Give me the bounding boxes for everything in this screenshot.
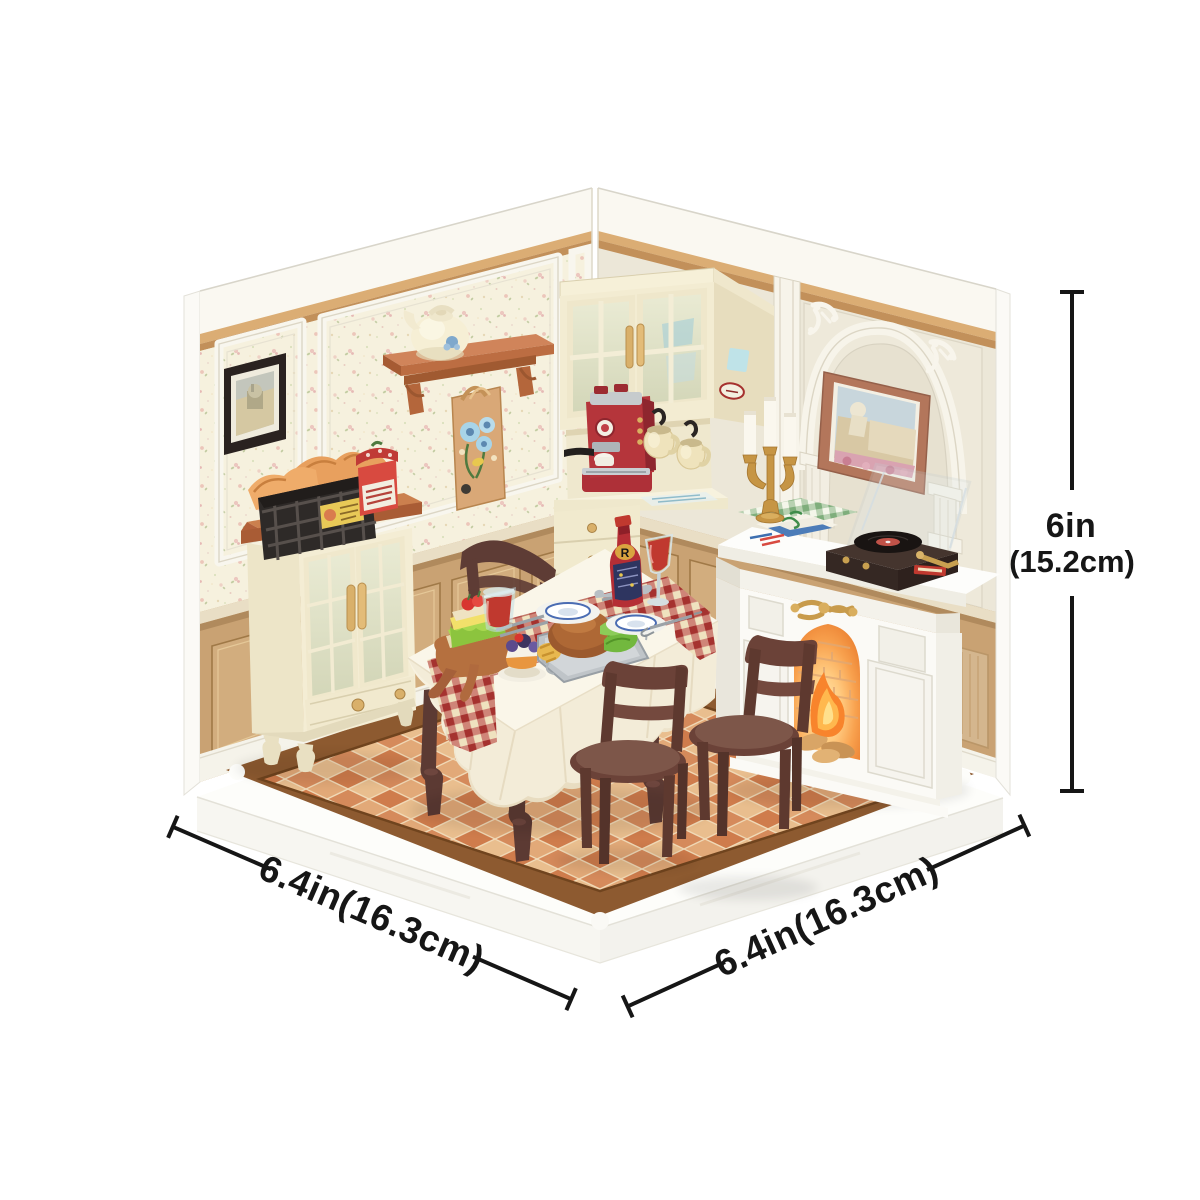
svg-text:R: R <box>621 546 630 560</box>
svg-text:6in: 6in <box>1046 507 1097 545</box>
svg-text:(15.2cm): (15.2cm) <box>1009 544 1135 579</box>
